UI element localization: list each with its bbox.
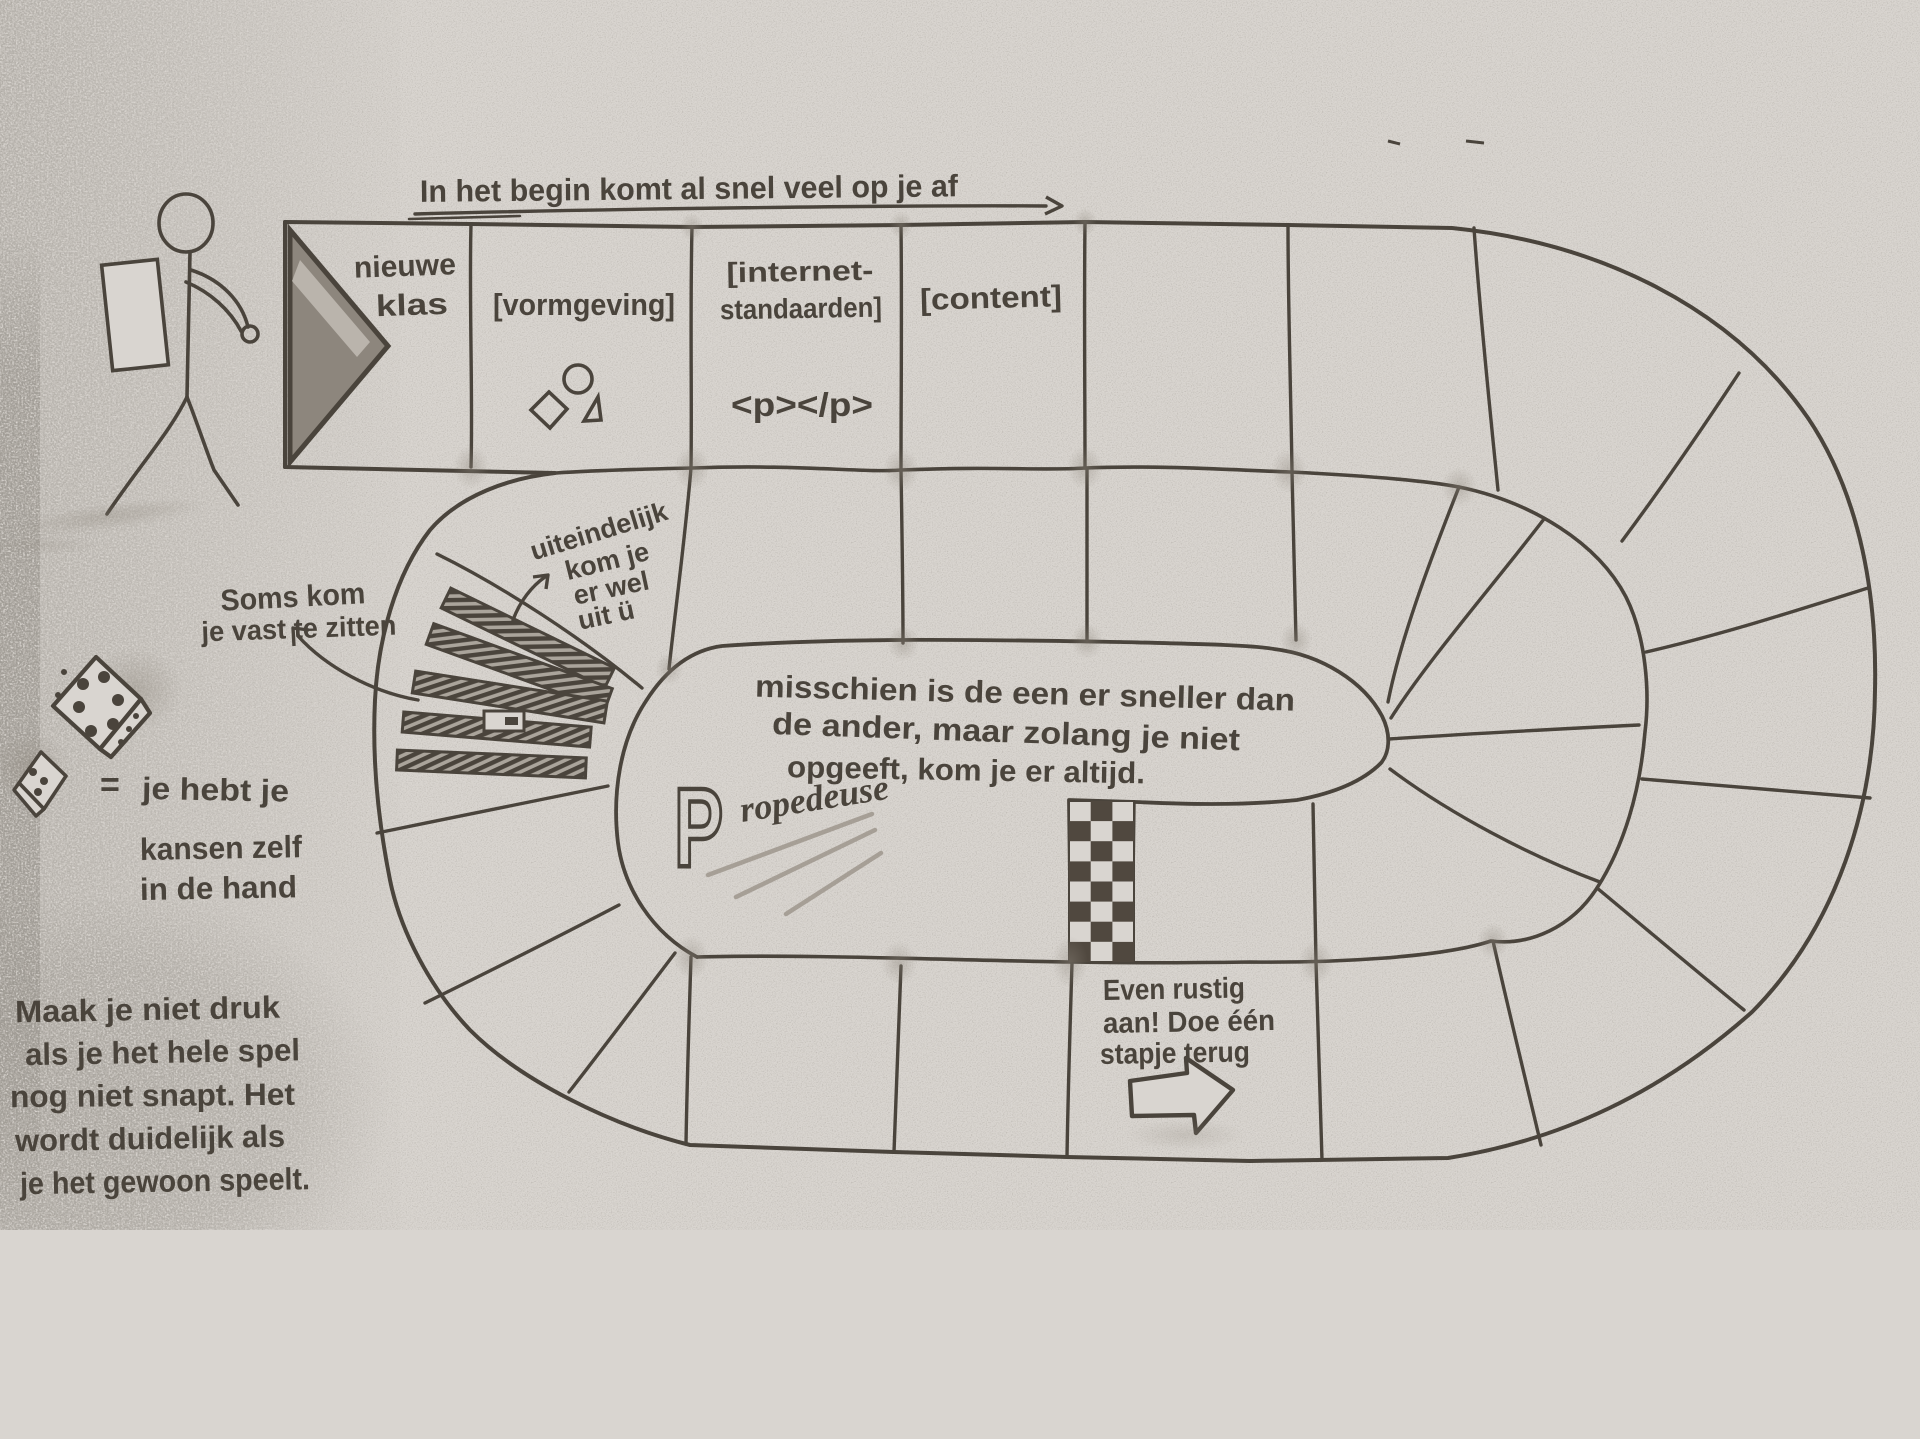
svg-text:Maak je niet druk: Maak je niet druk (15, 990, 281, 1030)
svg-text:nog niet snapt. Het: nog niet snapt. Het (10, 1077, 295, 1114)
svg-text:=: = (100, 766, 120, 804)
svg-text:[content]: [content] (920, 280, 1063, 317)
svg-text:<p></p>: <p></p> (731, 386, 873, 423)
svg-text:In het begin komt al snel veel: In het begin komt al snel veel op je af (420, 168, 959, 209)
svg-text:stapje terug: stapje terug (1100, 1036, 1251, 1071)
svg-text:klas: klas (375, 288, 448, 323)
svg-text:aan! Doe één: aan! Doe één (1103, 1005, 1276, 1040)
svg-text:in de hand: in de hand (140, 869, 298, 907)
svg-text:kansen zelf: kansen zelf (140, 829, 303, 867)
svg-text:je het gewoon speelt.: je het gewoon speelt. (19, 1161, 310, 1201)
svg-text:[internet-: [internet- (726, 255, 874, 289)
svg-text:nieuwe: nieuwe (353, 248, 456, 285)
svg-text:je hebt je: je hebt je (141, 771, 290, 809)
svg-text:Even rustig: Even rustig (1103, 973, 1246, 1007)
svg-text:als je het hele spel: als je het hele spel (25, 1032, 301, 1072)
svg-text:wordt duidelijk als: wordt duidelijk als (14, 1119, 286, 1159)
svg-text:standaarden]: standaarden] (720, 292, 883, 326)
svg-text:[vormgeving]: [vormgeving] (493, 287, 675, 322)
